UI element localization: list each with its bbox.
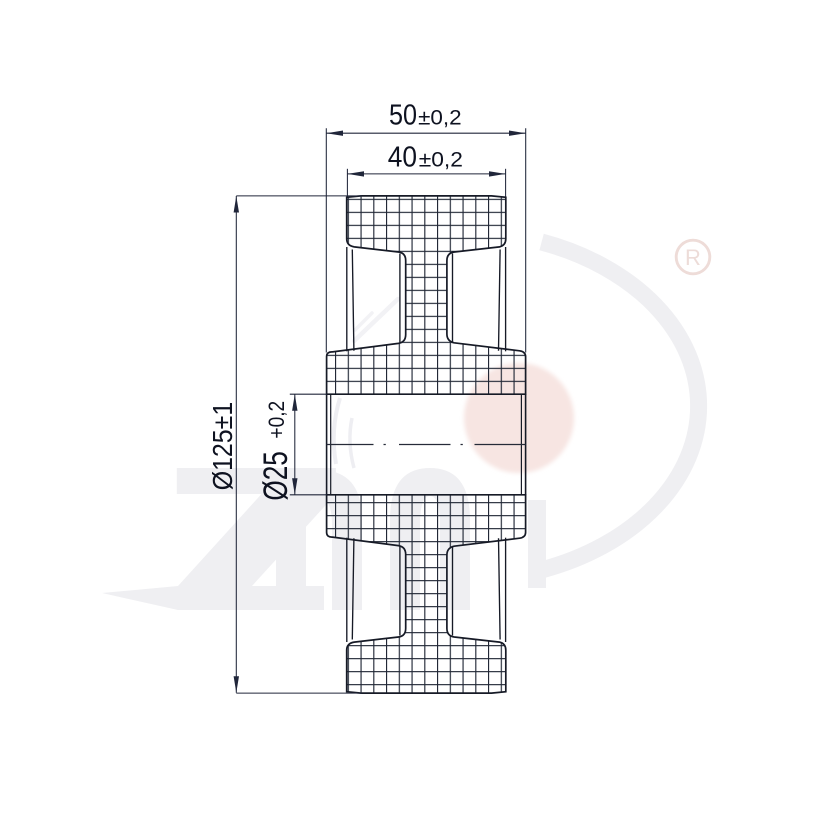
svg-text:Ø125±1: Ø125±1 (206, 402, 238, 490)
svg-text:50: 50 (389, 98, 417, 131)
svg-text:40: 40 (388, 140, 417, 172)
svg-text:R: R (685, 245, 701, 270)
svg-text:Ø25: Ø25 (258, 451, 295, 500)
svg-text:+0,2: +0,2 (265, 401, 290, 439)
svg-text:±0,2: ±0,2 (418, 105, 462, 129)
svg-text:±0,2: ±0,2 (419, 147, 463, 171)
